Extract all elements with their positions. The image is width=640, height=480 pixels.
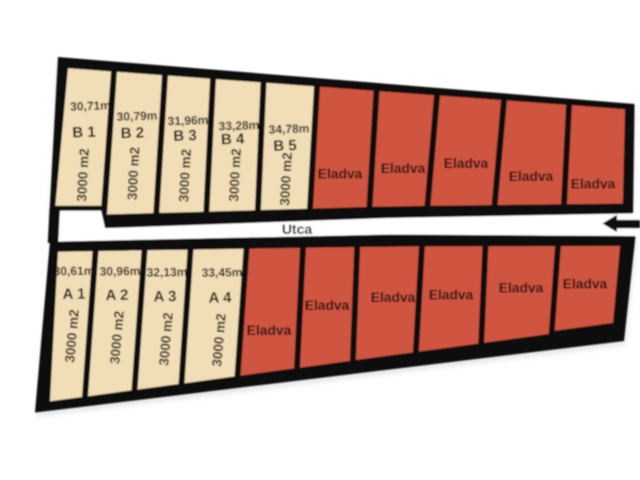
svg-text:3000 m2: 3000 m2 <box>74 148 92 202</box>
svg-text:34,78m: 34,78m <box>268 121 309 136</box>
svg-text:3000 m2: 3000 m2 <box>277 152 295 206</box>
svg-text:3000 m2: 3000 m2 <box>125 146 143 200</box>
svg-text:Eladva: Eladva <box>318 167 363 182</box>
svg-text:B 4: B 4 <box>221 131 246 149</box>
svg-text:Eladva: Eladva <box>444 156 489 171</box>
svg-text:30,71m: 30,71m <box>70 98 111 113</box>
svg-text:30,79m: 30,79m <box>116 108 157 123</box>
svg-text:B 5: B 5 <box>273 137 297 155</box>
svg-text:B 2: B 2 <box>120 124 144 142</box>
svg-text:Eladva: Eladva <box>571 177 616 192</box>
svg-text:Eladva: Eladva <box>305 298 350 313</box>
svg-text:B 1: B 1 <box>72 124 96 142</box>
svg-text:Eladva: Eladva <box>499 281 544 296</box>
svg-text:30,61m: 30,61m <box>54 264 95 279</box>
svg-text:A 4: A 4 <box>208 289 232 306</box>
svg-text:Eladva: Eladva <box>371 290 416 305</box>
svg-text:A 1: A 1 <box>62 286 85 303</box>
svg-text:Eladva: Eladva <box>429 288 474 303</box>
svg-text:A 3: A 3 <box>153 288 176 305</box>
svg-text:B 3: B 3 <box>173 127 197 145</box>
svg-text:Eladva: Eladva <box>509 169 554 184</box>
svg-text:Eladva: Eladva <box>381 161 426 176</box>
svg-text:Utca: Utca <box>282 221 313 237</box>
svg-text:31,96m: 31,96m <box>167 113 208 128</box>
svg-text:3000 m2: 3000 m2 <box>226 148 244 202</box>
svg-text:33,45m: 33,45m <box>202 265 243 280</box>
svg-text:Eladva: Eladva <box>247 323 292 338</box>
svg-text:3000 m2: 3000 m2 <box>176 148 194 202</box>
svg-text:A 2: A 2 <box>105 287 128 304</box>
svg-text:32,13m: 32,13m <box>147 265 188 280</box>
svg-text:Eladva: Eladva <box>563 277 608 292</box>
svg-text:30,96m: 30,96m <box>100 264 141 279</box>
